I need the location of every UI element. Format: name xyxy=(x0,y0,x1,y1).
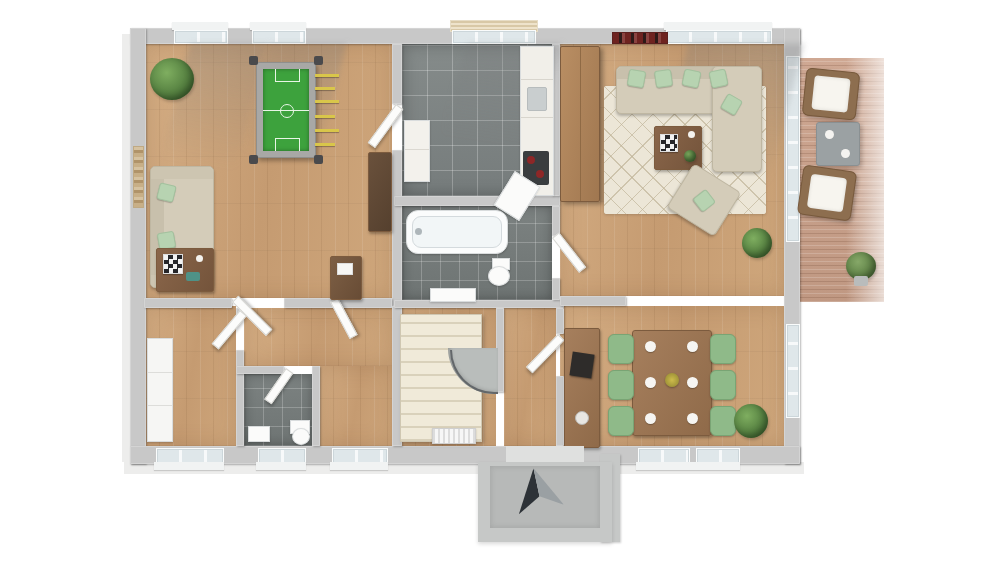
counter-seam xyxy=(521,79,553,80)
tv-on-sideboard xyxy=(569,352,594,379)
window-sill xyxy=(664,22,772,30)
terrace-plant-pot xyxy=(854,276,868,286)
games-room-window-east xyxy=(252,30,306,44)
dining-table xyxy=(632,330,712,436)
terrace-armchair-north xyxy=(802,67,861,120)
chair-cushion xyxy=(811,75,850,113)
terrace-side-table xyxy=(816,122,860,166)
games-room-wall-art xyxy=(133,146,144,208)
living-room-terrace-door xyxy=(666,30,772,44)
kitchen-base-cabinet xyxy=(404,120,430,182)
window-sill xyxy=(636,462,740,470)
foosball-goal-box-top xyxy=(275,69,300,82)
kitchen-counter xyxy=(520,46,554,196)
kitchen-window xyxy=(452,30,536,44)
foosball-field xyxy=(263,69,309,151)
decor-ball xyxy=(688,131,695,138)
wall-dining-west-upper xyxy=(556,308,564,334)
dining-chair xyxy=(710,334,736,364)
exterior-face-west xyxy=(122,34,130,462)
table-plant xyxy=(684,150,696,162)
counter-seam xyxy=(521,117,553,118)
outer-wall-west xyxy=(130,28,146,464)
window-sill xyxy=(154,462,224,470)
bathtub-basin xyxy=(412,216,502,248)
wall-wc-east xyxy=(312,366,320,446)
place-setting xyxy=(687,377,698,388)
bathtub xyxy=(406,210,508,254)
desk-papers xyxy=(337,263,353,275)
mint-pillow xyxy=(681,68,701,88)
cabinet-seam xyxy=(405,149,429,150)
window-sill xyxy=(330,462,388,470)
foosball-rod xyxy=(315,115,335,118)
corridor-south-floor xyxy=(320,366,392,446)
foosball-leg xyxy=(249,56,258,65)
living-room-plant xyxy=(742,228,772,258)
games-room-sideboard xyxy=(368,152,392,232)
foosball-rod xyxy=(315,100,339,103)
games-room-window-west xyxy=(174,30,228,44)
chessboard xyxy=(660,134,678,152)
foosball-rod xyxy=(315,143,335,146)
cabinet-seam xyxy=(580,47,581,201)
table-cup xyxy=(825,130,834,139)
wall-games-kitchen-lower xyxy=(392,150,402,306)
bedroom-wardrobe xyxy=(147,338,173,442)
terrace-armchair-south xyxy=(797,164,857,221)
bathtub-faucet xyxy=(415,228,422,235)
wall-bath-east-lower xyxy=(552,278,560,300)
foosball-leg xyxy=(314,155,323,164)
wall-kitchen-bath xyxy=(394,196,560,206)
wc-toilet-bowl xyxy=(292,428,310,445)
place-setting xyxy=(645,377,656,388)
table-cup xyxy=(841,149,850,158)
decor-ball xyxy=(196,255,203,262)
foosball-leg xyxy=(314,56,323,65)
hall-floor xyxy=(504,308,556,446)
place-setting xyxy=(645,341,656,352)
games-room-corner-plant xyxy=(150,58,194,100)
red-burner xyxy=(527,156,535,164)
kitchen-sink xyxy=(527,87,547,111)
games-room-desk xyxy=(330,256,362,300)
table-centerpiece xyxy=(665,373,679,387)
decor-bowl xyxy=(575,411,589,425)
dining-chair xyxy=(608,334,634,364)
place-setting xyxy=(687,413,698,424)
corridor-floor xyxy=(244,308,392,366)
dining-chair xyxy=(710,406,736,436)
window-sill xyxy=(250,22,306,30)
mint-pillow xyxy=(708,68,728,88)
foosball-rod xyxy=(315,74,339,77)
mint-pillow xyxy=(654,69,673,88)
wc-washbasin xyxy=(248,426,270,442)
wardrobe-seam xyxy=(148,405,172,406)
wall-dining-west-lower xyxy=(556,376,564,446)
bathroom-washbasin xyxy=(430,288,476,302)
chair-cushion xyxy=(807,174,847,213)
mint-pillow xyxy=(692,189,716,213)
dining-chair xyxy=(710,370,736,400)
chessboard xyxy=(163,254,183,274)
red-burner xyxy=(536,170,544,178)
dining-room-window-east xyxy=(786,324,800,418)
foosball-table xyxy=(256,62,316,158)
mint-pillow xyxy=(627,69,647,89)
front-door-opening xyxy=(506,446,584,462)
window-sill xyxy=(172,22,228,30)
foosball-center-circle xyxy=(280,104,294,118)
window-sill xyxy=(256,462,306,470)
dining-chair xyxy=(608,406,634,436)
sofa-armrest xyxy=(151,167,213,179)
wall-games-south-west xyxy=(144,298,232,308)
wall-bedroom-east xyxy=(236,350,244,446)
radiator xyxy=(432,428,476,444)
tall-cabinet xyxy=(560,46,600,202)
toilet-bowl xyxy=(488,266,510,286)
foosball-leg xyxy=(249,155,258,164)
dining-sideboard xyxy=(564,328,600,448)
place-setting xyxy=(645,413,656,424)
floorplan-canvas xyxy=(0,0,1000,562)
foosball-goal-box-bottom xyxy=(275,138,300,151)
dining-chair xyxy=(608,370,634,400)
foosball-rod xyxy=(315,87,335,90)
dining-room-plant xyxy=(734,404,768,438)
wardrobe-seam xyxy=(148,372,172,373)
teal-decor xyxy=(186,272,200,281)
wall-bath-south xyxy=(394,300,564,308)
living-room-window-east xyxy=(786,56,800,242)
wall-living-dining-partial xyxy=(560,296,626,306)
wall-games-kitchen-upper xyxy=(392,44,402,104)
living-room-wall-art xyxy=(612,32,668,44)
place-setting xyxy=(687,341,698,352)
foosball-rod xyxy=(315,129,339,132)
wall-wc-north xyxy=(236,366,284,374)
